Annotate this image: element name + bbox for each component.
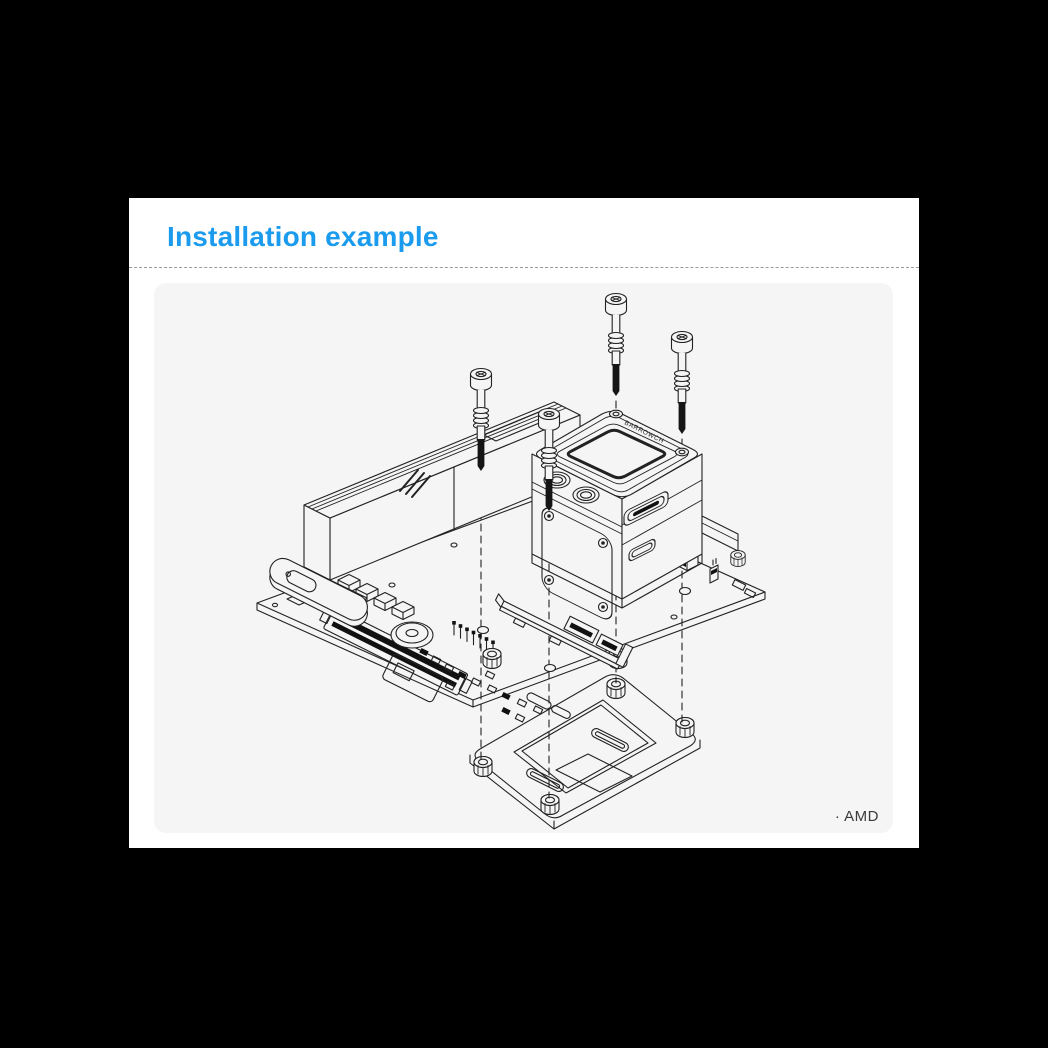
section-title: Installation example — [129, 198, 919, 253]
mounting-screw-3 — [606, 294, 627, 397]
figure-panel: BARROWCH · AMD — [154, 283, 893, 833]
mounting-screw-4 — [672, 332, 693, 435]
installation-diagram: BARROWCH — [154, 283, 893, 833]
dashed-divider — [129, 267, 919, 268]
platform-label: · AMD — [835, 808, 879, 825]
content-card: Installation example — [129, 198, 919, 848]
g14-port-2 — [573, 487, 599, 503]
